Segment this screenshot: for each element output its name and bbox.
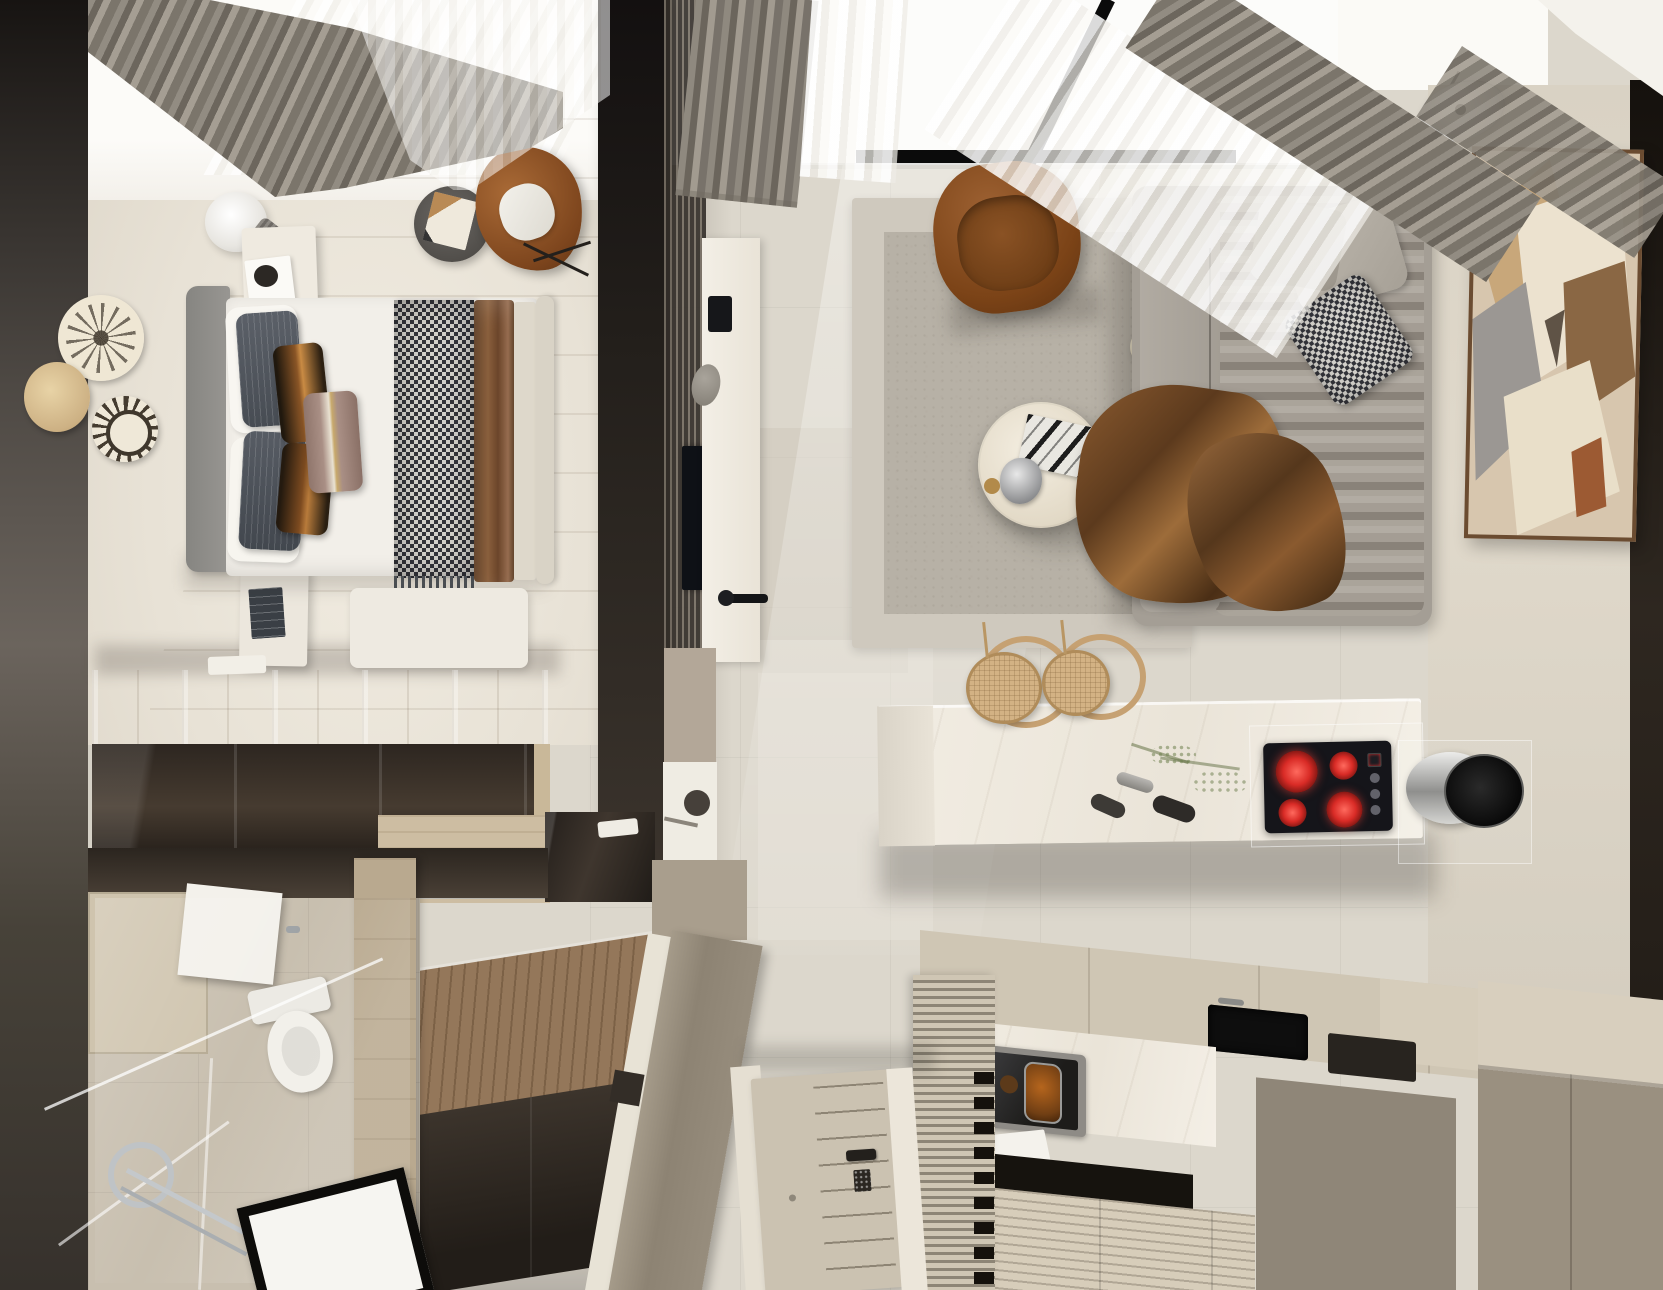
- pendant-disc-1-center: [1455, 104, 1466, 115]
- sofa-pillow-gray-2: [1248, 197, 1349, 293]
- bed-footboard: [536, 296, 554, 584]
- herb-leaves-2: [1192, 770, 1248, 796]
- wall-plate-solid: [24, 362, 90, 432]
- door-keypad: [853, 1169, 871, 1192]
- tall-cabinet-right-front: [1478, 1065, 1663, 1290]
- cooktop-knob-2: [1370, 789, 1380, 799]
- entrance-door: [751, 1069, 904, 1290]
- bath-service-hole: [684, 790, 710, 816]
- oven-roast: [1024, 1061, 1062, 1125]
- sideboard-dark-cap: [609, 1070, 644, 1107]
- herb-leaves-1: [1150, 744, 1196, 766]
- pillow-mauve: [303, 390, 364, 494]
- bed-headboard: [186, 286, 230, 572]
- pocket-door-handle-base: [718, 590, 734, 606]
- louver-dark-gaps: [974, 1072, 994, 1290]
- door-handle: [846, 1149, 877, 1162]
- burner-large-1: [1275, 750, 1318, 793]
- burner-large-2: [1326, 791, 1363, 828]
- wall-plate-chevron-center: [106, 410, 152, 456]
- bedroom-rug: [350, 588, 528, 668]
- range-hood-opening: [1444, 754, 1524, 828]
- wall-plate-star-pattern: [66, 303, 136, 373]
- cabinet-hinge: [286, 926, 300, 933]
- oven: [982, 1045, 1086, 1138]
- kitchen-island-side: [877, 706, 935, 847]
- partition-lower-wall: [664, 648, 716, 766]
- cooktop-display: [1367, 753, 1381, 767]
- window-mullion-horizontal: [856, 150, 1236, 163]
- sink-black: [1208, 1004, 1308, 1061]
- wall-sconce: [708, 296, 732, 332]
- counter-front-taupe: [1256, 1077, 1456, 1290]
- window-glass: [670, 0, 1338, 165]
- stool-2-seat: [1042, 650, 1110, 716]
- pendant-disc-2-center: [1404, 145, 1414, 155]
- bathroom-top-dark-band: [88, 848, 548, 898]
- burner-small-2: [1278, 798, 1307, 827]
- tambour-panel: [987, 1187, 1255, 1290]
- partition-wall: [598, 0, 672, 862]
- artwork-frame: [1464, 146, 1644, 542]
- scene-root: [0, 0, 1663, 1290]
- door-peephole: [789, 1194, 796, 1201]
- upper-cabinet-taupe-cap: [652, 860, 747, 940]
- cooktop-knob-1: [1370, 773, 1380, 783]
- window-glass-right: [1338, 0, 1548, 90]
- stool-1-seat: [966, 652, 1042, 724]
- appliance-inset-dark: [1328, 1033, 1416, 1082]
- ceiling-corner: [1538, 0, 1663, 96]
- brass-cup: [984, 478, 1000, 494]
- book-dark: [248, 587, 285, 639]
- throw-brown: [474, 300, 514, 582]
- throw-houndstooth: [394, 300, 474, 578]
- cooktop: [1263, 741, 1393, 834]
- duvet-fold: [514, 302, 536, 580]
- wall-plate-chevron: [92, 396, 158, 462]
- mirror-cabinet-door-open: [177, 883, 282, 985]
- wardrobe-tray: [208, 655, 267, 675]
- cooktop-knob-3: [1370, 805, 1380, 815]
- vase-dark: [254, 265, 278, 287]
- burner-small-1: [1329, 751, 1358, 780]
- wardrobe-top: [92, 670, 550, 746]
